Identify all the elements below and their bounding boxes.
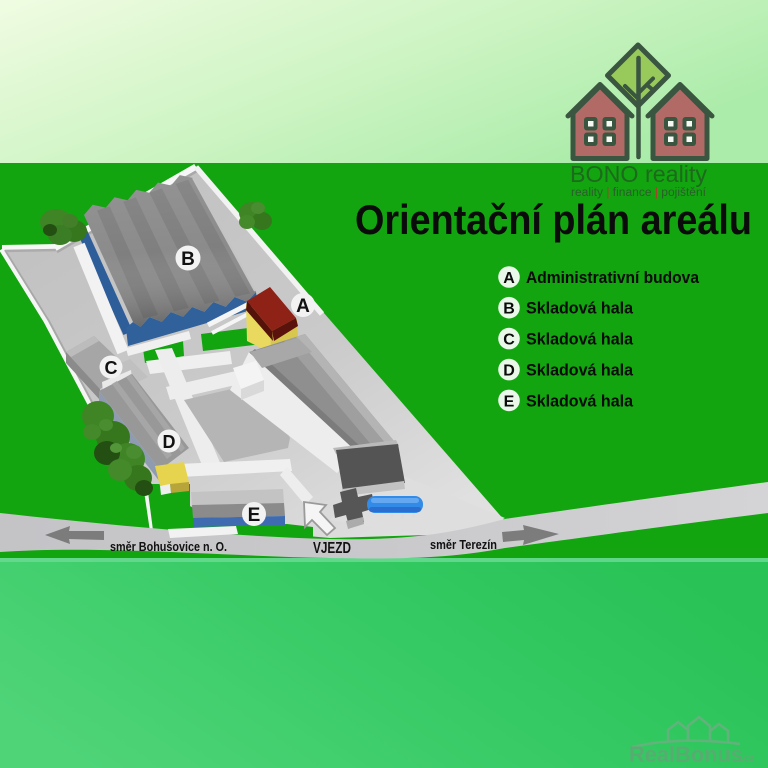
svg-text:C: C	[503, 332, 515, 349]
svg-text:BONO reality: BONO reality	[570, 161, 707, 187]
svg-text:A: A	[296, 296, 310, 317]
svg-text:Skladová hala: Skladová hala	[526, 362, 634, 380]
svg-text:Administrativní budova: Administrativní budova	[526, 269, 700, 287]
svg-text:D: D	[503, 363, 515, 380]
svg-text:Skladová hala: Skladová hala	[526, 392, 634, 410]
svg-text:B: B	[503, 301, 515, 318]
svg-text:RealBonus: RealBonus	[629, 742, 743, 767]
svg-text:reality | finance | pojištění: reality | finance | pojištění	[571, 187, 707, 199]
svg-text:VJEZD: VJEZD	[313, 540, 351, 557]
svg-text:A: A	[503, 270, 515, 287]
svg-text:E: E	[504, 393, 515, 410]
svg-text:B: B	[181, 249, 195, 270]
svg-text:směr Terezín: směr Terezín	[430, 537, 497, 552]
svg-text:směr Bohušovice n. O.: směr Bohušovice n. O.	[110, 539, 227, 554]
svg-text:Orientační plán areálu: Orientační plán areálu	[355, 196, 752, 243]
svg-text:C: C	[105, 358, 118, 378]
svg-text:E: E	[248, 505, 261, 526]
svg-text:Skladová hala: Skladová hala	[526, 300, 634, 318]
svg-text:Skladová hala: Skladová hala	[526, 331, 634, 349]
svg-text:D: D	[163, 432, 176, 452]
svg-text:.cz: .cz	[741, 753, 754, 764]
